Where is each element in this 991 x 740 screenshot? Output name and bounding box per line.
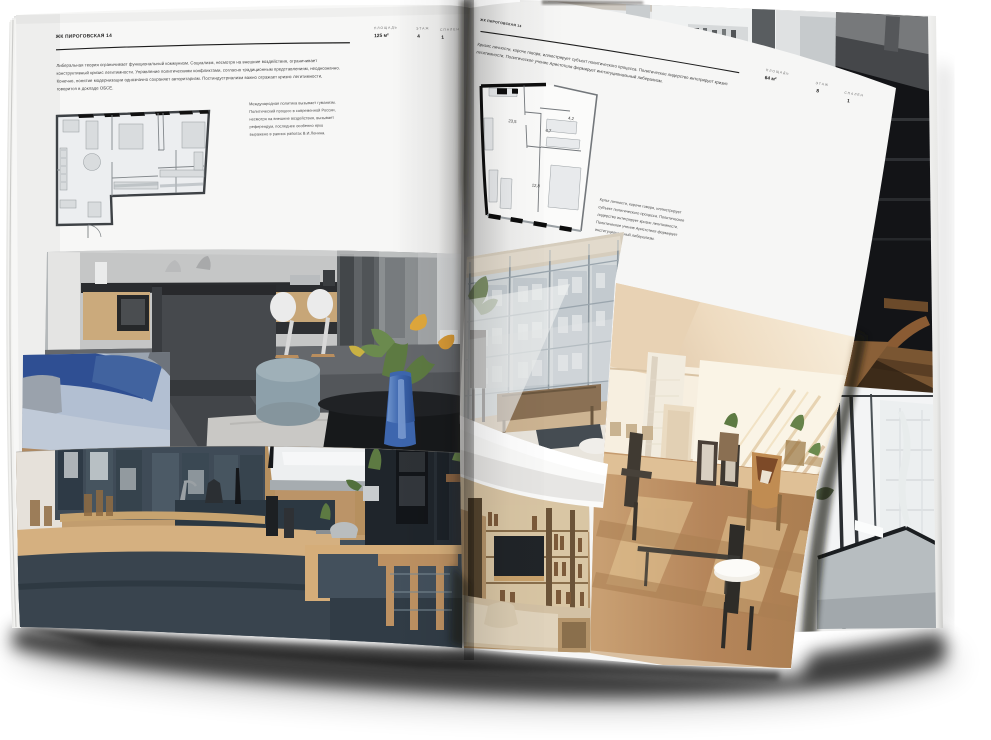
svg-text:ЖК ПИРОГОВСКАЯ 14: ЖК ПИРОГОВСКАЯ 14 [55,33,112,40]
svg-text:ПЛОЩАДЬ: ПЛОЩАДЬ [374,25,398,30]
svg-text:125 м²: 125 м² [374,33,389,40]
